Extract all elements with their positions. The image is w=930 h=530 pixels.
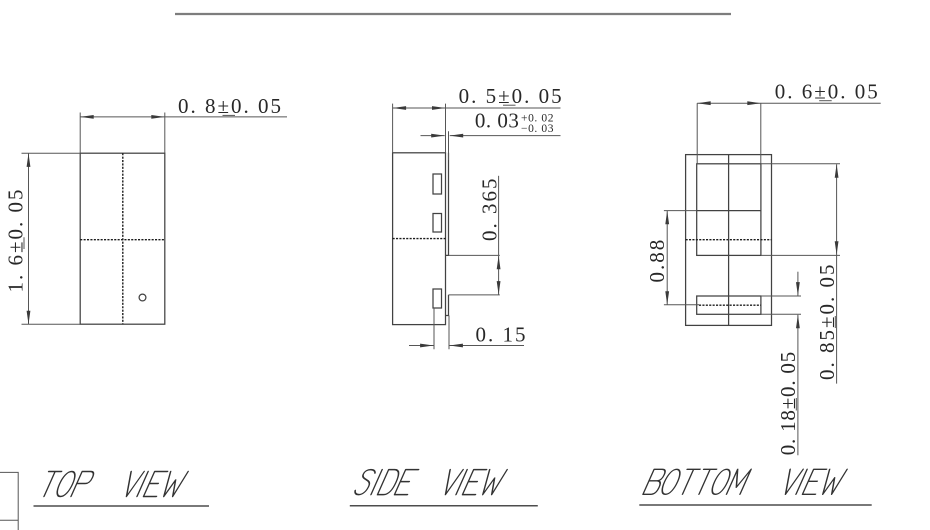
svg-text:0. 5±0. 05: 0. 5±0. 05 — [459, 84, 564, 108]
svg-text:−0. 03: −0. 03 — [521, 123, 554, 135]
svg-text:0. 365: 0. 365 — [478, 177, 502, 242]
svg-text:0. 03: 0. 03 — [475, 109, 520, 133]
svg-text:0. 6±0. 05: 0. 6±0. 05 — [775, 79, 880, 103]
svg-text:0. 15: 0. 15 — [476, 323, 528, 347]
svg-text:0. 8±0. 05: 0. 8±0. 05 — [178, 94, 283, 118]
svg-text:0.88: 0.88 — [645, 238, 669, 283]
